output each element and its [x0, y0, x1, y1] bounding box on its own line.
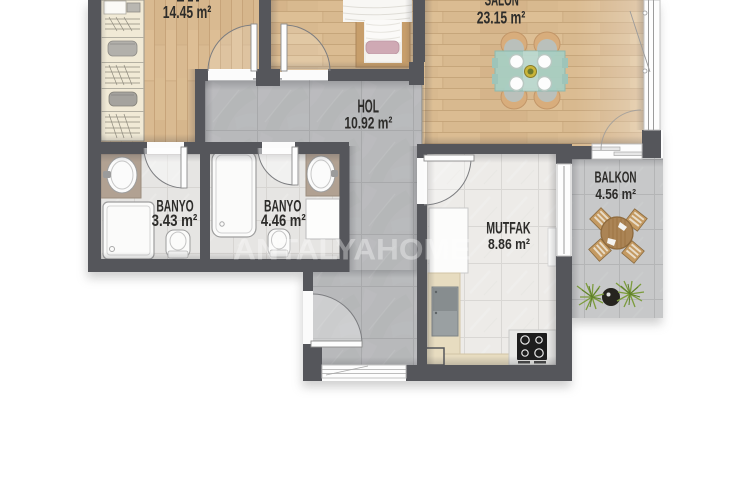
svg-text:4.56 m²: 4.56 m²: [595, 187, 636, 203]
svg-text:8.86 m²: 8.86 m²: [488, 236, 530, 253]
svg-text:23.15 m²: 23.15 m²: [477, 7, 526, 27]
svg-text:14.45 m²: 14.45 m²: [163, 2, 212, 22]
svg-text:BALKON: BALKON: [594, 169, 636, 186]
svg-text:10.92 m²: 10.92 m²: [344, 114, 392, 133]
svg-text:3.43 m²: 3.43 m²: [152, 211, 198, 230]
svg-text:4.46 m²: 4.46 m²: [261, 211, 306, 230]
svg-text:ANTALYAHOME: ANTALYAHOME: [233, 234, 471, 267]
svg-text:MUTFAK: MUTFAK: [486, 219, 531, 238]
